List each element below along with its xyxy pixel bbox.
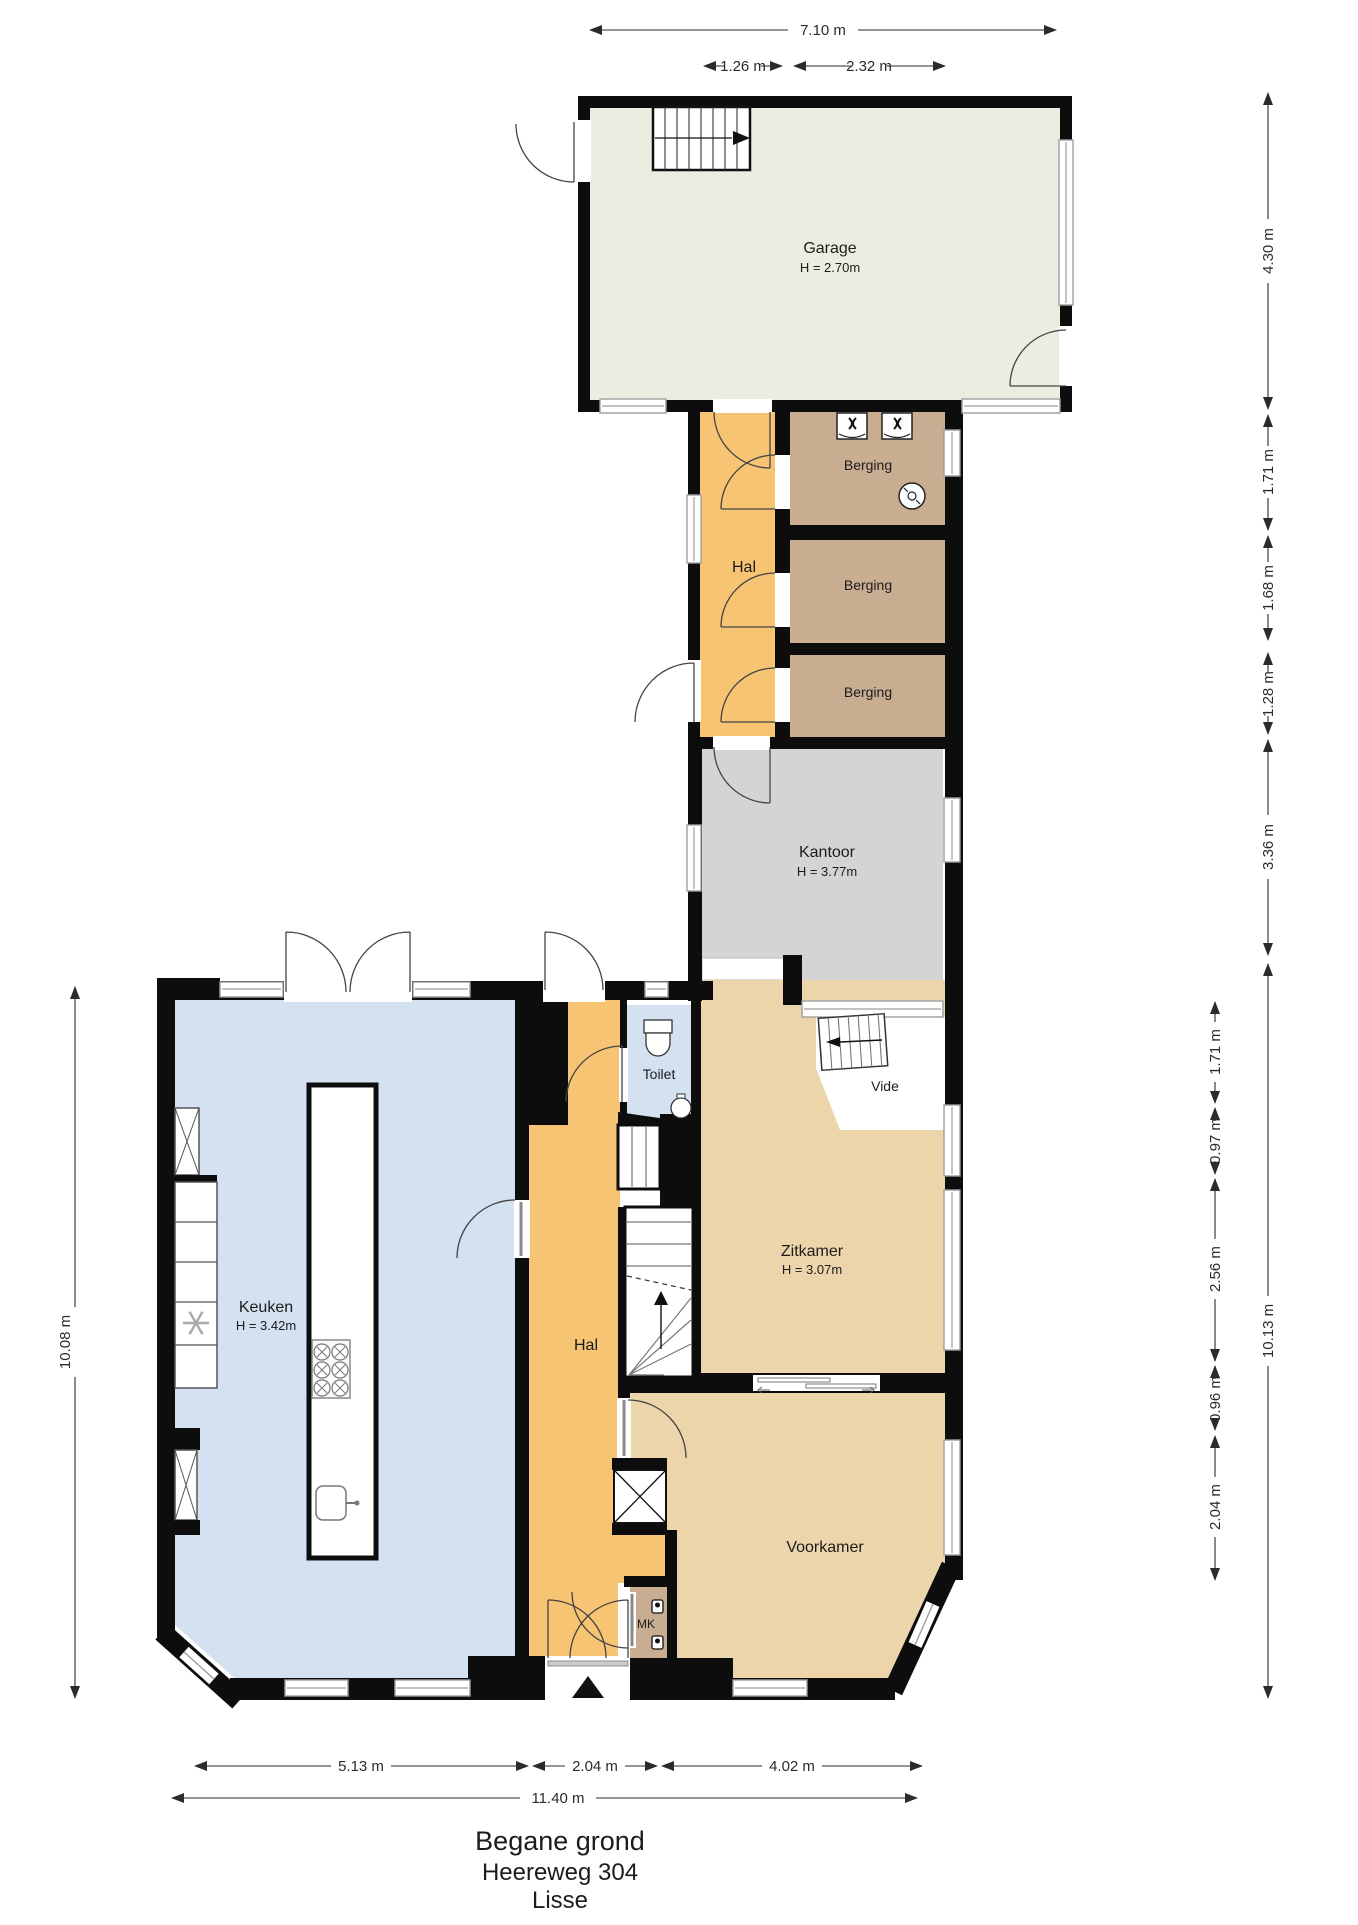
voorkamer-label: Voorkamer bbox=[786, 1539, 864, 1556]
washing-machine-icon bbox=[837, 413, 867, 439]
garage-staircase bbox=[653, 107, 750, 170]
dim-bottom-513: 5.13 m bbox=[338, 1758, 384, 1775]
hal-wing-label: Hal bbox=[732, 559, 756, 576]
washing-machine-icon bbox=[882, 413, 912, 439]
kantoor-opening bbox=[702, 958, 785, 980]
dim-top-sub1: 1.26 m bbox=[720, 58, 766, 75]
floorplan-drawing: Garage H = 2.70m Hal Berging Berging Ber… bbox=[0, 0, 1358, 1920]
keuken-label: Keuken bbox=[239, 1299, 293, 1316]
dim-right-171: 1.71 m bbox=[1260, 449, 1277, 495]
dim-top-overall: 7.10 m bbox=[800, 22, 846, 39]
kitchen-island bbox=[309, 1085, 376, 1558]
dim-inner-171: 1.71 m bbox=[1207, 1029, 1224, 1075]
garage-height-label: H = 2.70m bbox=[800, 260, 860, 275]
dim-inner-256: 2.56 m bbox=[1207, 1246, 1224, 1292]
garage-label: Garage bbox=[803, 240, 856, 257]
zitkamer-label: Zitkamer bbox=[781, 1243, 844, 1260]
garage-left-door bbox=[516, 122, 574, 182]
plan-title-address: Heereweg 304 bbox=[482, 1859, 638, 1886]
berging1-label: Berging bbox=[844, 457, 892, 473]
hal-lower-label: Hal bbox=[574, 1337, 598, 1354]
vide-staircase bbox=[818, 1014, 887, 1070]
hal-lower-nook-floor bbox=[618, 1530, 665, 1583]
voorkamer-floor bbox=[630, 1393, 945, 1683]
hal-lower-mid-floor bbox=[529, 1125, 568, 1207]
toilet-label: Toilet bbox=[643, 1066, 676, 1082]
dim-right-168: 1.68 m bbox=[1260, 565, 1277, 611]
kantoor-height-label: H = 3.77m bbox=[797, 864, 857, 879]
kantoor-label: Kantoor bbox=[799, 844, 856, 861]
dim-bottom-402: 4.02 m bbox=[769, 1758, 815, 1775]
hal-lower-upper-floor bbox=[568, 1000, 620, 1207]
plan-title-floor: Begane grond bbox=[475, 1826, 645, 1856]
floorplan-page: Garage H = 2.70m Hal Berging Berging Ber… bbox=[0, 0, 1358, 1920]
mk-label: MK bbox=[637, 1617, 655, 1631]
main-staircase bbox=[625, 1207, 693, 1377]
vide-label: Vide bbox=[871, 1078, 899, 1094]
cooktop-icon bbox=[312, 1340, 350, 1398]
boiler-icon bbox=[899, 483, 925, 509]
dim-right-128: 1.28 m bbox=[1260, 671, 1277, 717]
dim-inner-096: 0.96 m bbox=[1207, 1376, 1224, 1422]
upper-stair-landing bbox=[618, 1125, 660, 1189]
berging3-label: Berging bbox=[844, 684, 892, 700]
dim-right-1013: 10.13 m bbox=[1260, 1304, 1277, 1358]
dim-inner-097: 0.97 m bbox=[1207, 1118, 1224, 1164]
zitkamer-height-label: H = 3.07m bbox=[782, 1262, 842, 1277]
dim-right-430: 4.30 m bbox=[1260, 228, 1277, 274]
plan-title-city: Lisse bbox=[532, 1887, 588, 1914]
dim-inner-204: 2.04 m bbox=[1207, 1484, 1224, 1530]
shaft-box bbox=[614, 1470, 666, 1523]
dim-right-336: 3.36 m bbox=[1260, 824, 1277, 870]
dim-top-sub2: 2.32 m bbox=[846, 58, 892, 75]
dim-bottom-204: 2.04 m bbox=[572, 1758, 618, 1775]
toilet-fixture-icon bbox=[644, 1020, 672, 1056]
dim-left-1008: 10.08 m bbox=[57, 1315, 74, 1369]
front-door-sill bbox=[548, 1661, 628, 1666]
keuken-height-label: H = 3.42m bbox=[236, 1318, 296, 1333]
hal-lower-main-floor bbox=[529, 1377, 618, 1656]
dim-bottom-overall: 11.40 m bbox=[531, 1790, 584, 1807]
berging2-label: Berging bbox=[844, 577, 892, 593]
hal-exterior-door bbox=[635, 663, 694, 722]
